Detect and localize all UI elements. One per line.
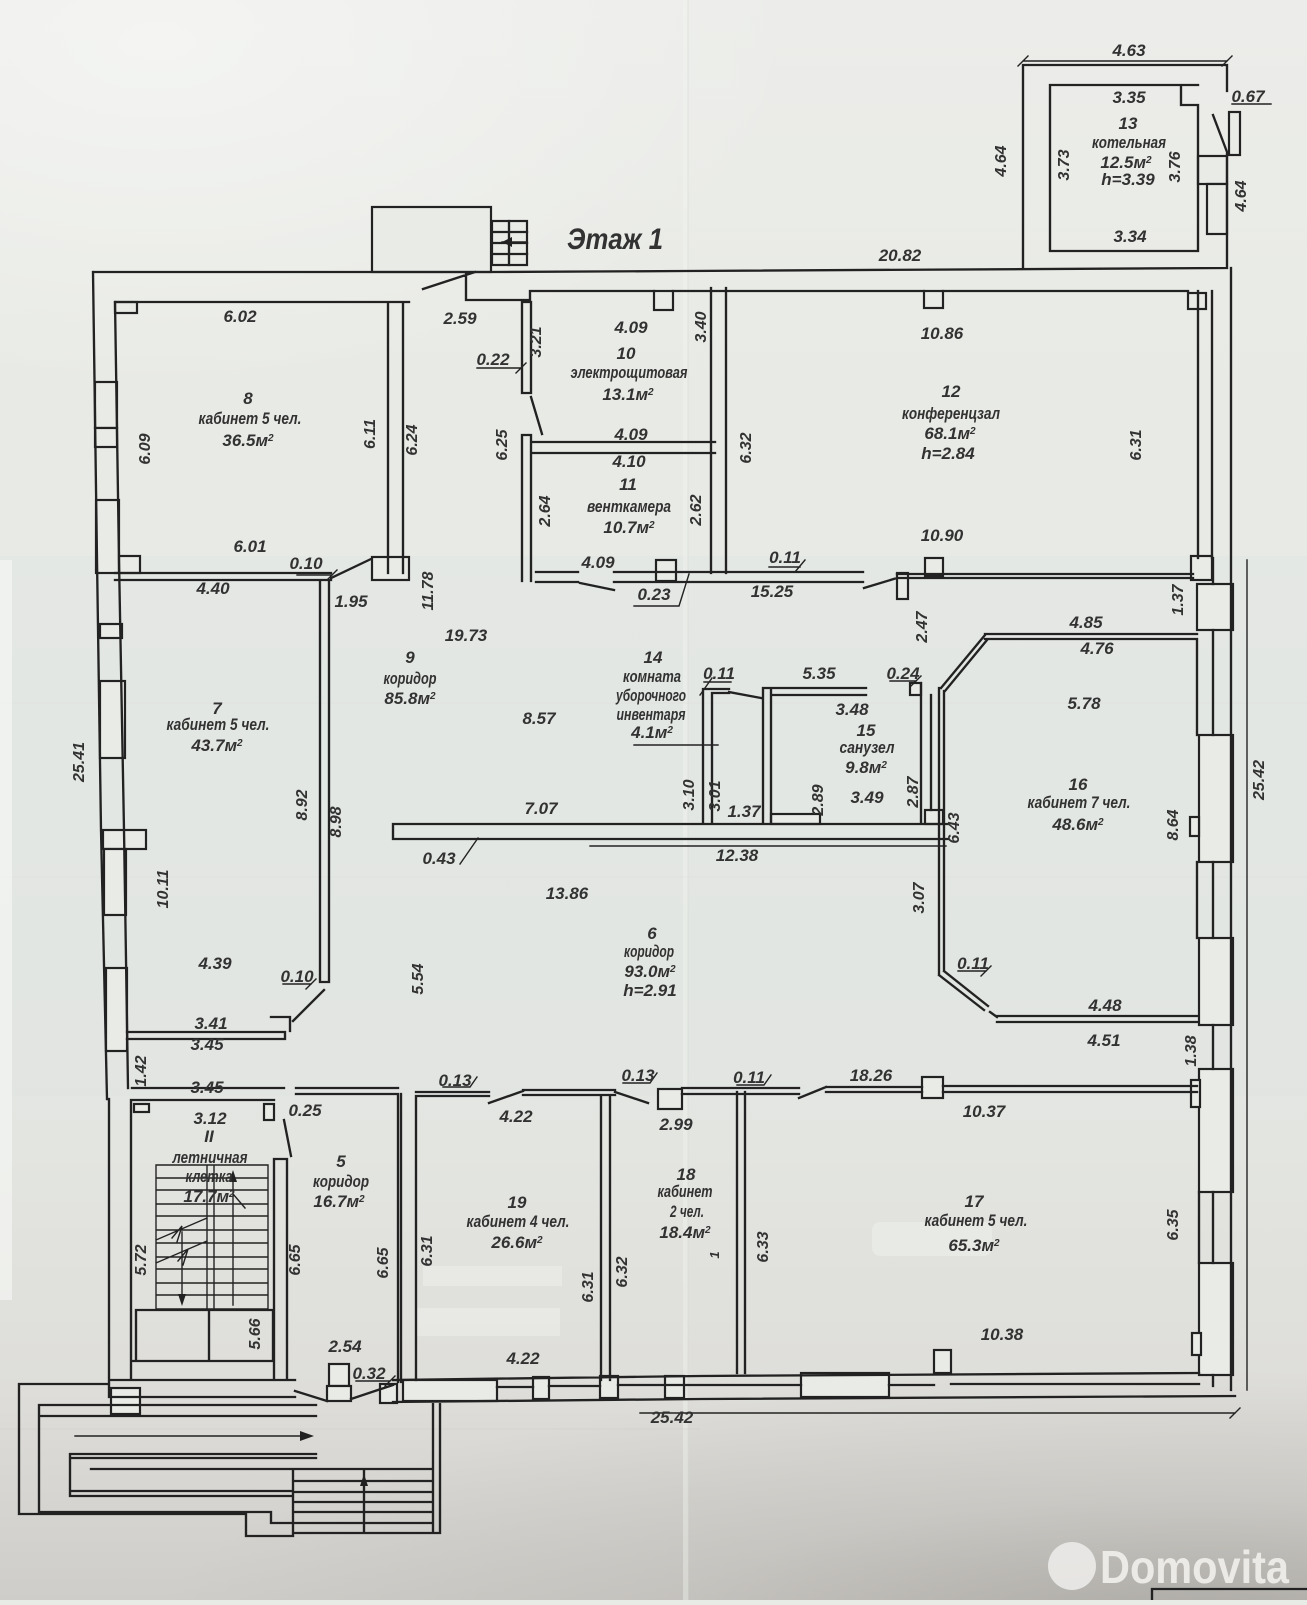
svg-text:5.35: 5.35	[802, 664, 836, 683]
svg-text:93.0м2: 93.0м2	[624, 962, 676, 981]
svg-text:3.49: 3.49	[850, 788, 884, 807]
svg-text:13: 13	[1119, 114, 1138, 133]
svg-text:кабинет 4 чел.: кабинет 4 чел.	[467, 1212, 570, 1231]
svg-text:0.11: 0.11	[957, 954, 989, 973]
svg-text:3.01: 3.01	[707, 780, 724, 811]
svg-text:68.1м2: 68.1м2	[924, 424, 976, 443]
svg-text:0.11: 0.11	[769, 548, 801, 567]
svg-text:7.07: 7.07	[524, 799, 559, 818]
svg-text:4.51: 4.51	[1086, 1031, 1120, 1050]
svg-text:0.10: 0.10	[280, 967, 314, 986]
svg-text:6.25: 6.25	[494, 428, 511, 460]
svg-text:6.31: 6.31	[580, 1271, 597, 1302]
svg-text:Этаж 1: Этаж 1	[567, 223, 663, 256]
svg-text:4.48: 4.48	[1087, 996, 1122, 1015]
svg-text:5: 5	[336, 1152, 346, 1171]
svg-text:1.38: 1.38	[1183, 1035, 1200, 1066]
svg-text:17.7м2: 17.7м2	[183, 1187, 235, 1206]
svg-text:0.43: 0.43	[422, 849, 456, 868]
svg-text:1.95: 1.95	[334, 592, 368, 611]
svg-text:10.37: 10.37	[963, 1102, 1007, 1121]
svg-text:2.64: 2.64	[537, 495, 554, 527]
svg-text:3.73: 3.73	[1056, 149, 1073, 180]
svg-text:котельная: котельная	[1092, 133, 1166, 152]
svg-text:4.22: 4.22	[505, 1349, 540, 1368]
svg-text:26.6м2: 26.6м2	[490, 1233, 543, 1252]
svg-text:1.42: 1.42	[133, 1055, 150, 1086]
svg-text:48.6м2: 48.6м2	[1051, 815, 1104, 834]
svg-text:5.66: 5.66	[247, 1318, 264, 1349]
svg-text:кабинет 7 чел.: кабинет 7 чел.	[1028, 793, 1131, 812]
svg-text:43.7м2: 43.7м2	[190, 736, 243, 755]
svg-text:25.42: 25.42	[1251, 760, 1268, 801]
svg-text:0.25: 0.25	[288, 1101, 322, 1120]
svg-text:10.90: 10.90	[921, 526, 964, 545]
svg-text:2 чел.: 2 чел.	[669, 1202, 704, 1221]
svg-text:3.35: 3.35	[1112, 88, 1146, 107]
svg-text:комната: комната	[623, 667, 681, 686]
svg-text:0.22: 0.22	[476, 350, 510, 369]
svg-text:8.98: 8.98	[328, 806, 345, 837]
svg-text:4.63: 4.63	[1111, 41, 1146, 60]
svg-text:5.54: 5.54	[410, 963, 427, 994]
svg-text:10.38: 10.38	[981, 1325, 1024, 1344]
svg-text:кабинет 5 чел.: кабинет 5 чел.	[925, 1211, 1028, 1230]
svg-text:6.65: 6.65	[287, 1243, 304, 1275]
svg-text:санузел: санузел	[840, 738, 895, 757]
svg-text:Domovita: Domovita	[1100, 1541, 1289, 1593]
svg-text:уборочного: уборочного	[615, 686, 686, 705]
svg-text:4.09: 4.09	[613, 318, 648, 337]
svg-text:кабинет: кабинет	[658, 1182, 713, 1201]
svg-text:конференцзал: конференцзал	[902, 404, 1000, 423]
svg-text:8.57: 8.57	[522, 709, 557, 728]
svg-text:1: 1	[707, 1251, 722, 1258]
svg-text:9.8м2: 9.8м2	[845, 758, 887, 777]
svg-text:клетка: клетка	[186, 1167, 233, 1186]
svg-text:3.41: 3.41	[194, 1014, 227, 1033]
svg-text:0.10: 0.10	[289, 554, 323, 573]
svg-text:h=2.84: h=2.84	[921, 444, 975, 463]
svg-text:20.82: 20.82	[878, 246, 922, 265]
svg-text:1.37: 1.37	[1170, 583, 1187, 615]
svg-text:10: 10	[617, 344, 636, 363]
svg-text:16: 16	[1069, 775, 1088, 794]
svg-text:коридор: коридор	[384, 669, 437, 688]
svg-text:12: 12	[942, 382, 961, 401]
svg-text:3.07: 3.07	[911, 881, 928, 913]
svg-text:12.38: 12.38	[716, 846, 759, 865]
svg-text:6.02: 6.02	[223, 307, 257, 326]
svg-text:9: 9	[405, 648, 415, 667]
svg-text:летничная: летничная	[172, 1148, 248, 1167]
svg-text:6: 6	[647, 924, 657, 943]
svg-text:коридор: коридор	[313, 1172, 369, 1191]
svg-text:кабинет 5 чел.: кабинет 5 чел.	[199, 409, 302, 428]
svg-text:5.72: 5.72	[133, 1244, 150, 1275]
svg-text:85.8м2: 85.8м2	[384, 689, 436, 708]
svg-text:65.3м2: 65.3м2	[948, 1236, 1000, 1255]
svg-text:2.59: 2.59	[442, 309, 477, 328]
svg-text:18.26: 18.26	[850, 1066, 893, 1085]
svg-text:5.78: 5.78	[1067, 694, 1101, 713]
svg-text:2.99: 2.99	[658, 1115, 693, 1134]
svg-text:17: 17	[965, 1192, 985, 1211]
svg-text:19.73: 19.73	[445, 626, 488, 645]
svg-text:11.78: 11.78	[420, 571, 437, 610]
svg-text:0.67: 0.67	[1231, 87, 1266, 106]
svg-text:0.13: 0.13	[621, 1066, 655, 1085]
svg-text:электрощитовая: электрощитовая	[571, 363, 688, 382]
svg-text:6.09: 6.09	[137, 433, 154, 464]
svg-text:4.10: 4.10	[611, 452, 646, 471]
svg-text:14: 14	[644, 648, 663, 667]
svg-text:0.11: 0.11	[703, 664, 735, 683]
svg-text:4.1м2: 4.1м2	[630, 723, 673, 742]
svg-text:2.87: 2.87	[905, 775, 922, 808]
svg-text:4.76: 4.76	[1079, 639, 1114, 658]
svg-text:II: II	[204, 1127, 215, 1146]
svg-text:4.09: 4.09	[580, 553, 615, 572]
svg-text:6.31: 6.31	[1128, 429, 1145, 460]
svg-text:6.11: 6.11	[362, 419, 379, 449]
svg-text:6.01: 6.01	[233, 537, 266, 556]
svg-text:10.86: 10.86	[921, 324, 964, 343]
svg-text:3.40: 3.40	[693, 311, 710, 342]
svg-text:6.65: 6.65	[375, 1246, 392, 1278]
svg-text:6.31: 6.31	[419, 1235, 436, 1266]
svg-text:4.85: 4.85	[1068, 613, 1103, 632]
svg-text:3.21: 3.21	[528, 326, 545, 357]
svg-text:0.32: 0.32	[352, 1364, 386, 1383]
svg-text:3.48: 3.48	[835, 700, 869, 719]
svg-text:13.1м2: 13.1м2	[602, 385, 654, 404]
svg-text:4.22: 4.22	[498, 1107, 533, 1126]
svg-text:кабинет 5 чел.: кабинет 5 чел.	[167, 715, 270, 734]
svg-text:венткамера: венткамера	[587, 497, 671, 516]
svg-text:10.7м2: 10.7м2	[603, 518, 655, 537]
svg-text:h=3.39: h=3.39	[1101, 170, 1155, 189]
svg-text:2.47: 2.47	[914, 610, 931, 643]
svg-text:13.86: 13.86	[546, 884, 589, 903]
svg-text:4.40: 4.40	[195, 579, 230, 598]
svg-text:h=2.91: h=2.91	[623, 981, 676, 1000]
svg-text:18.4м2: 18.4м2	[659, 1223, 711, 1242]
svg-text:4.64: 4.64	[993, 145, 1010, 177]
svg-text:1.37: 1.37	[727, 802, 762, 821]
svg-text:4.64: 4.64	[1233, 180, 1250, 212]
svg-text:2.62: 2.62	[688, 494, 705, 526]
svg-text:8: 8	[243, 389, 253, 408]
svg-text:3.45: 3.45	[190, 1035, 224, 1054]
svg-text:25.42: 25.42	[650, 1408, 694, 1427]
svg-text:3.34: 3.34	[1113, 227, 1147, 246]
svg-text:6.43: 6.43	[946, 812, 963, 843]
svg-text:3.76: 3.76	[1167, 151, 1184, 182]
svg-text:19: 19	[508, 1193, 527, 1212]
svg-text:3.45: 3.45	[190, 1078, 224, 1097]
svg-text:0.11: 0.11	[733, 1068, 765, 1087]
svg-text:0.13: 0.13	[438, 1071, 472, 1090]
svg-text:6.32: 6.32	[738, 432, 755, 463]
svg-text:6.35: 6.35	[1165, 1208, 1182, 1240]
svg-text:11: 11	[619, 475, 637, 494]
svg-text:0.23: 0.23	[637, 585, 671, 604]
svg-text:инвентаря: инвентаря	[617, 705, 686, 724]
svg-text:6.33: 6.33	[755, 1231, 772, 1262]
svg-text:36.5м2: 36.5м2	[222, 431, 274, 450]
svg-text:6.32: 6.32	[614, 1256, 631, 1287]
svg-text:10.11: 10.11	[155, 869, 172, 908]
svg-text:коридор: коридор	[624, 942, 674, 961]
svg-text:6.24: 6.24	[404, 424, 421, 455]
svg-text:2.54: 2.54	[327, 1337, 362, 1356]
svg-text:8.64: 8.64	[1165, 809, 1182, 840]
svg-text:8.92: 8.92	[294, 789, 311, 820]
svg-text:3.10: 3.10	[681, 779, 698, 810]
svg-text:25.41: 25.41	[71, 742, 88, 783]
svg-text:4.39: 4.39	[197, 954, 232, 973]
svg-text:16.7м2: 16.7м2	[313, 1192, 365, 1211]
svg-text:4.09: 4.09	[613, 425, 648, 444]
svg-text:15.25: 15.25	[751, 582, 794, 601]
svg-text:0.24: 0.24	[886, 664, 920, 683]
svg-text:3.12: 3.12	[193, 1109, 227, 1128]
svg-text:2.89: 2.89	[810, 784, 827, 816]
